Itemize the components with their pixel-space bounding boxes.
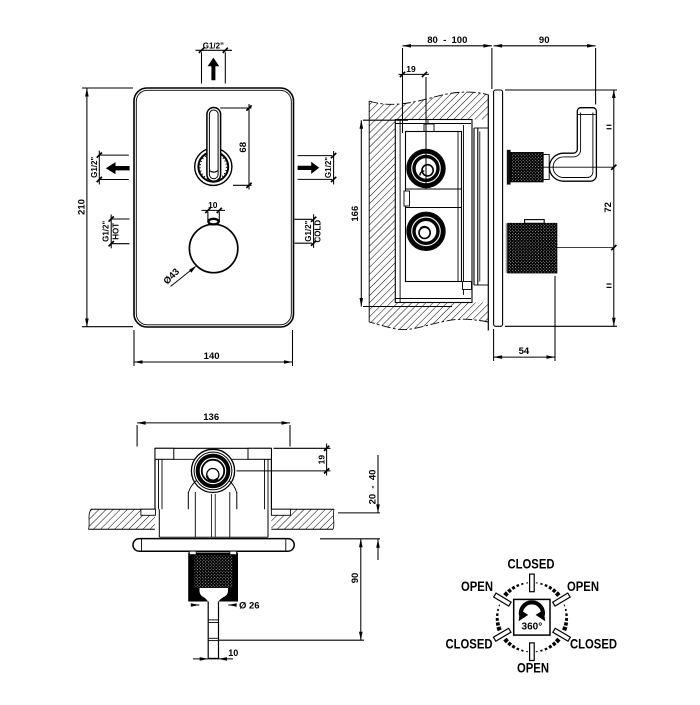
svg-text:68: 68 xyxy=(238,142,249,153)
svg-text:72: 72 xyxy=(603,202,614,213)
svg-text:54: 54 xyxy=(519,346,530,357)
svg-text:OPEN: OPEN xyxy=(517,661,549,676)
svg-text:CLOSED: CLOSED xyxy=(508,556,555,571)
svg-text:OPEN: OPEN xyxy=(461,579,493,594)
svg-text:COLD: COLD xyxy=(313,220,322,243)
svg-text:G1/2": G1/2" xyxy=(324,157,333,178)
svg-text:210: 210 xyxy=(76,199,87,215)
svg-text:90: 90 xyxy=(350,573,361,584)
svg-text:CLOSED: CLOSED xyxy=(570,636,617,651)
svg-text:19: 19 xyxy=(316,455,326,465)
svg-text:OPEN: OPEN xyxy=(567,579,599,594)
svg-text:10: 10 xyxy=(228,648,238,658)
svg-text:90: 90 xyxy=(539,35,550,46)
svg-text:166: 166 xyxy=(350,206,361,222)
svg-text:G1/2": G1/2" xyxy=(203,42,224,51)
svg-text:360°: 360° xyxy=(522,621,543,632)
svg-text:Ø 26: Ø 26 xyxy=(239,600,260,611)
svg-text:CLOSED: CLOSED xyxy=(446,636,493,651)
svg-text:10: 10 xyxy=(208,200,218,210)
svg-text:140: 140 xyxy=(204,351,220,362)
svg-text:19: 19 xyxy=(406,64,416,74)
svg-text:G1/2": G1/2" xyxy=(304,220,313,241)
svg-text:G1/2": G1/2" xyxy=(102,221,111,242)
svg-text:G1/2": G1/2" xyxy=(90,157,99,178)
svg-text:HOT: HOT xyxy=(112,223,121,240)
svg-text:80 - 100: 80 - 100 xyxy=(427,35,467,46)
svg-text:20 - 40: 20 - 40 xyxy=(367,470,378,505)
svg-text:136: 136 xyxy=(203,412,219,423)
